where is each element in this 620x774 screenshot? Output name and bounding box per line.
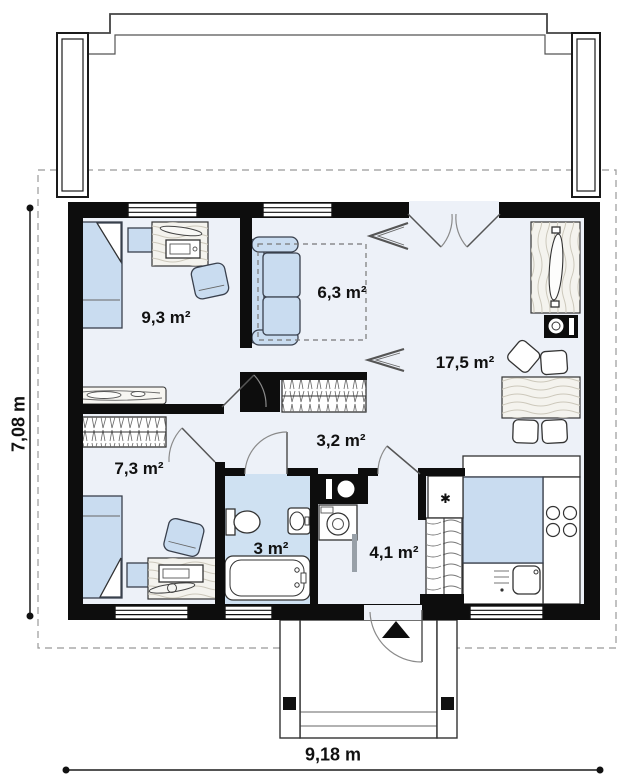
boiler-closet: ✱ [428, 476, 463, 518]
dimension-label-width: 9,18 m [305, 745, 361, 766]
room-label-vestibule: 4,1 m² [369, 543, 418, 563]
desk-chair-top-bedroom [190, 262, 230, 300]
porch-pillar-left [280, 620, 300, 738]
toilet [226, 509, 260, 535]
room-label-lounge-alcove: 6,3 m² [317, 283, 366, 303]
window [225, 606, 272, 619]
hallway-closet [282, 379, 366, 412]
window [263, 203, 332, 217]
bathtub [225, 556, 310, 600]
kitchen-island [463, 477, 543, 563]
bed-bottom-bedroom [80, 496, 122, 598]
washing-machine [319, 505, 357, 540]
kitchen-counter-top [463, 456, 580, 477]
dimension-line-bottom [63, 767, 604, 774]
kitchen [463, 456, 580, 604]
terrace-column-left [57, 33, 88, 197]
dresser-top-bedroom [79, 387, 166, 404]
window [470, 606, 543, 619]
window [128, 203, 197, 217]
room-label-living-room: 17,5 m² [436, 353, 495, 373]
entry-porch [280, 620, 457, 738]
vestibule-panel [352, 534, 357, 572]
nightstand-bottom-bedroom [127, 563, 149, 587]
dining-chair [541, 419, 567, 443]
sofa [249, 237, 300, 345]
nightstand-top-bedroom [128, 228, 152, 252]
terrace-column-right [572, 33, 600, 197]
floor-plan-drawing: ✱ [0, 0, 620, 774]
kitchen-counter-right [543, 477, 580, 604]
entrance-opening [364, 605, 422, 620]
wardrobe-bottom-bedroom [80, 417, 166, 447]
floor-plan-canvas: ✱ [0, 0, 620, 774]
room-label-bathroom: 3 m² [254, 539, 289, 559]
tv-cabinet [531, 222, 580, 313]
room-label-hallway: 3,2 m² [316, 431, 365, 451]
fireplace-stove [544, 315, 578, 338]
bed-top-bedroom [80, 222, 122, 328]
desk-top-bedroom [152, 222, 208, 266]
boiler-symbol: ✱ [440, 492, 451, 507]
dimension-label-depth: 7,08 m [9, 396, 30, 452]
desk-bottom-bedroom [148, 558, 218, 599]
washbasin [288, 508, 310, 534]
porch-pillar-right [437, 620, 457, 738]
room-label-bedroom-top: 9,3 m² [141, 308, 190, 328]
terrace-door-opening [409, 201, 499, 219]
window [115, 606, 188, 619]
dining-chair [513, 420, 539, 444]
vestibule-wardrobe [426, 518, 462, 598]
dining-chair [540, 350, 568, 375]
room-label-bedroom-bottom: 7,3 m² [114, 459, 163, 479]
